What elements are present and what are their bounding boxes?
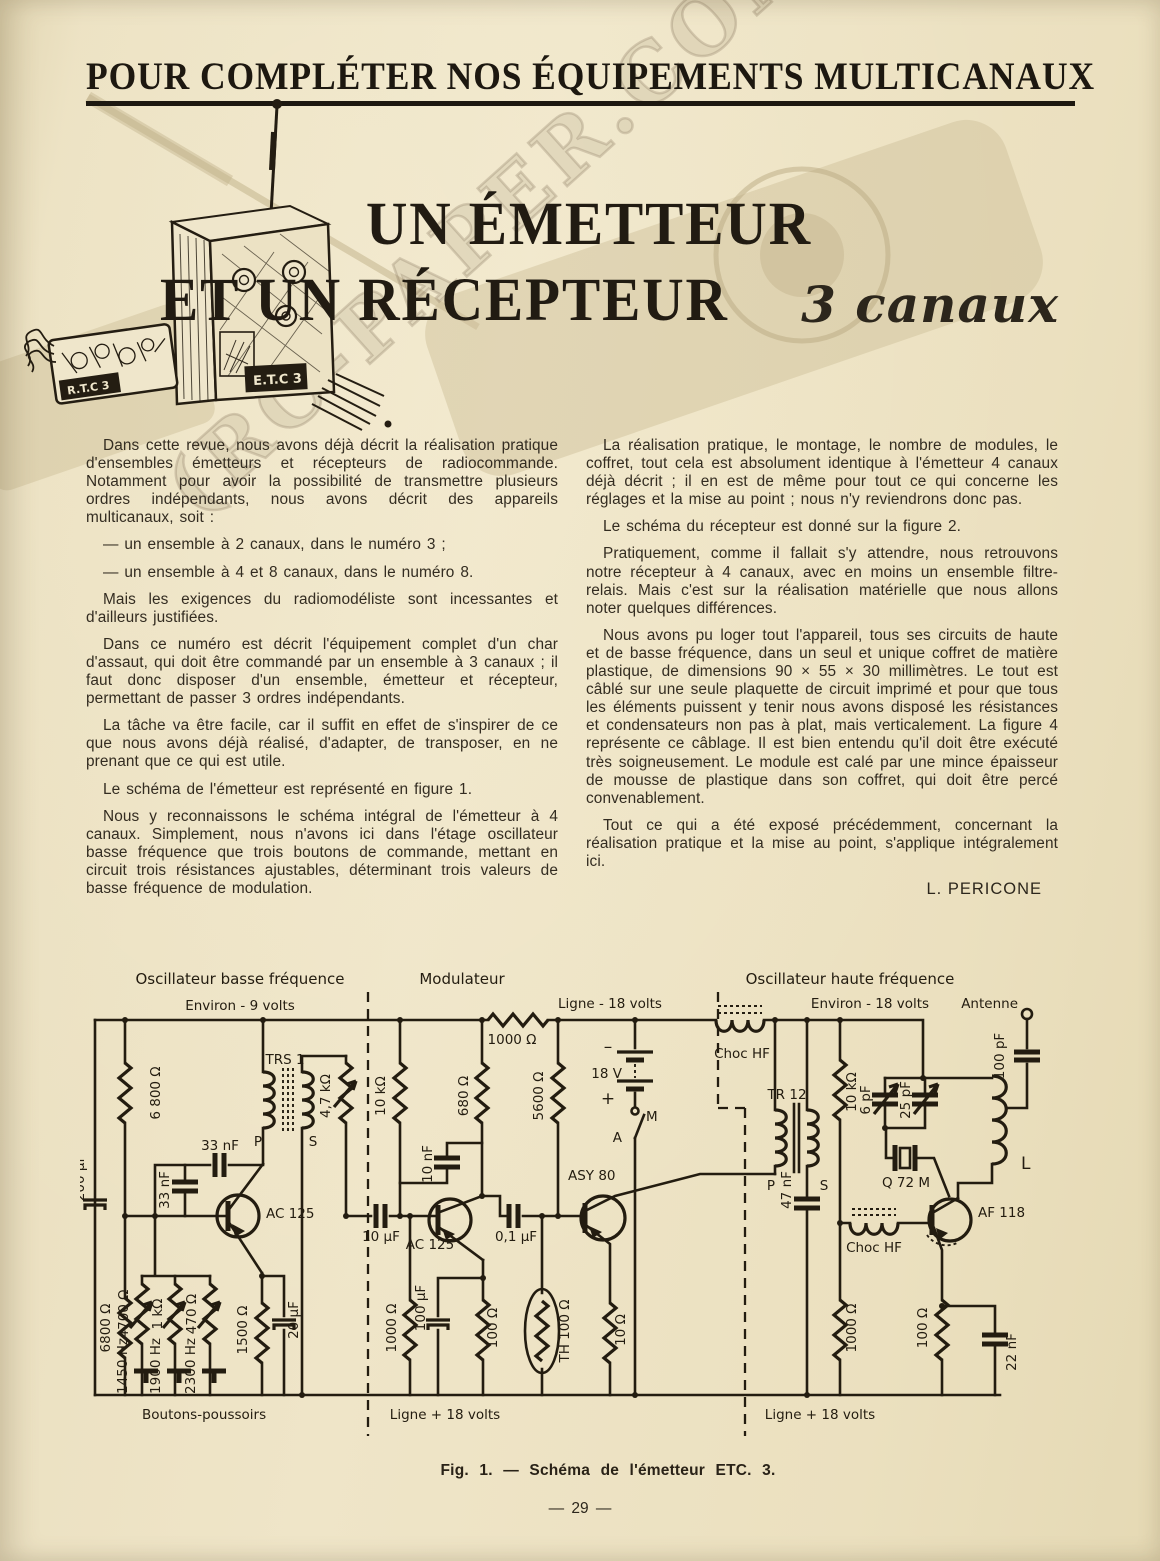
svg-text:1900 Hz: 1900 Hz [148, 1338, 164, 1394]
paragraph: La tâche va être facile, car il suffit e… [86, 717, 558, 771]
svg-text:1000 Ω: 1000 Ω [844, 1304, 860, 1353]
svg-text:6 pF: 6 pF [858, 1085, 874, 1114]
paragraph: Nous y reconnaissons le schéma intégral … [86, 808, 558, 898]
svg-text:33 nF: 33 nF [157, 1171, 173, 1209]
capacitor-10uF: 10 µF [362, 1204, 400, 1245]
resistor-10k-hf: 10 kΩ [834, 1020, 860, 1223]
svg-text:TH 100 Ω: TH 100 Ω [557, 1299, 573, 1363]
choke-HF-base: Choc HF [840, 1209, 929, 1256]
label-env-18v: Environ - 18 volts [811, 996, 929, 1012]
paragraph: Mais les exigences du radiomodéliste son… [86, 591, 558, 627]
svg-text:100 Ω: 100 Ω [915, 1308, 931, 1348]
label-ligne-p18-b: Ligne + 18 volts [765, 1407, 875, 1423]
capacitor-200uF: 200 µF [80, 1155, 107, 1210]
svg-text:10 µF: 10 µF [362, 1229, 400, 1245]
right-column: La réalisation pratique, le montage, le … [586, 437, 1058, 907]
svg-text:33 nF: 33 nF [201, 1138, 239, 1154]
transistor-AF118: AF 118 [927, 1198, 1025, 1300]
svg-text:10 kΩ: 10 kΩ [373, 1076, 389, 1116]
paragraph: Dans ce numéro est décrit l'équipement c… [86, 636, 558, 708]
label-env-9v: Environ - 9 volts [185, 998, 295, 1014]
svg-text:2300 Hz: 2300 Hz [183, 1338, 199, 1394]
receiver-module-illustration: R.T.C 3 [48, 324, 178, 404]
capacitor-22nF: 22 nF [942, 1306, 1020, 1395]
svg-text:1000 Ω: 1000 Ω [384, 1304, 400, 1353]
label-ligne-p18-a: Ligne + 18 volts [390, 1407, 500, 1423]
svg-text:A: A [613, 1130, 623, 1146]
svg-text:10 nF: 10 nF [420, 1145, 436, 1183]
resistor-10k-mod: 10 kΩ [373, 1020, 406, 1216]
svg-text:10 Ω: 10 Ω [613, 1314, 629, 1346]
svg-text:4700 Ω: 4700 Ω [116, 1290, 132, 1339]
svg-text:6 800 Ω: 6 800 Ω [148, 1066, 164, 1119]
resistor-1500: 1500 Ω [235, 1273, 268, 1395]
capacitor-10nF: 10 nF [400, 1143, 482, 1183]
resistor-5600: 5600 Ω [531, 1020, 564, 1216]
section-hf-label: Oscillateur haute fréquence [746, 970, 955, 988]
svg-text:470 Ω: 470 Ω [184, 1294, 200, 1334]
page-header: POUR COMPLÉTER NOS ÉQUIPEMENTS MULTICANA… [86, 54, 1095, 99]
paragraph: Le schéma de l'émetteur est représenté e… [86, 781, 558, 799]
paragraph: Nous avons pu loger tout l'appareil, tou… [586, 627, 1058, 808]
paragraph: Dans cette revue, nous avons déjà décrit… [86, 437, 558, 527]
svg-text:AC 125: AC 125 [266, 1206, 314, 1222]
svg-text:6800 Ω: 6800 Ω [98, 1304, 114, 1353]
magazine-page: (RC-PAPER.COM POUR COMPLÉTER NOS ÉQUIPEM… [0, 0, 1160, 1561]
svg-text:+: + [601, 1089, 615, 1109]
svg-text:P: P [767, 1178, 775, 1194]
author-name: L. PERICONE [586, 880, 1042, 899]
svg-text:200 µF: 200 µF [80, 1155, 88, 1201]
svg-text:0,1 µF: 0,1 µF [495, 1229, 537, 1245]
svg-text:P: P [254, 1134, 262, 1150]
svg-text:680 Ω: 680 Ω [456, 1076, 472, 1116]
svg-text:22 nF: 22 nF [1004, 1333, 1020, 1371]
svg-text:1450 Hz: 1450 Hz [115, 1338, 131, 1394]
svg-text:100 pF: 100 pF [992, 1033, 1008, 1079]
svg-text:20 µF: 20 µF [286, 1301, 302, 1339]
left-column: Dans cette revue, nous avons déjà décrit… [86, 437, 558, 907]
svg-text:1000 Ω: 1000 Ω [488, 1032, 537, 1048]
transistor-AC125-mod: AC 125 [406, 1196, 483, 1260]
svg-text:4,7 kΩ: 4,7 kΩ [318, 1074, 334, 1118]
svg-text:1500 Ω: 1500 Ω [235, 1306, 251, 1355]
paragraph: Tout ce qui a été exposé précédemment, c… [586, 817, 1058, 871]
svg-text:AF 118: AF 118 [978, 1205, 1025, 1221]
antenna-terminal: Antenne 100 pF [961, 996, 1040, 1108]
transistor-AC125-bf: AC 125 [217, 1164, 314, 1273]
resistor-1000-rail: 1000 Ω [488, 1014, 548, 1048]
svg-text:ASY 80: ASY 80 [568, 1168, 616, 1184]
capacitor-20uF: 20 µF [262, 1276, 302, 1395]
svg-text:100 µF: 100 µF [413, 1285, 429, 1331]
svg-text:TR 12: TR 12 [766, 1087, 806, 1103]
section-mod-label: Modulateur [419, 970, 505, 988]
svg-text:100 Ω: 100 Ω [485, 1308, 501, 1348]
svg-text:M: M [646, 1109, 658, 1125]
article-body: Dans cette revue, nous avons déjà décrit… [86, 437, 1058, 907]
svg-text:Q 72 M: Q 72 M [882, 1175, 930, 1191]
svg-text:–: – [604, 1037, 613, 1057]
title-line-2: ET UN RÉCEPTEUR [160, 266, 729, 336]
title-suffix: 3 canaux [801, 275, 1059, 334]
resistor-10: 10 Ω [604, 1303, 629, 1395]
svg-text:L: L [1021, 1154, 1031, 1174]
svg-text:Antenne: Antenne [961, 996, 1018, 1012]
svg-text:18 V: 18 V [591, 1066, 622, 1082]
crystal-Q72M: Q 72 M [882, 1128, 949, 1196]
title-line-1: UN ÉMETTEUR [366, 190, 812, 260]
page-number: — 29 — [0, 1500, 1160, 1518]
capacitor-100uF: 100 µF [413, 1278, 483, 1395]
label-ligne-m18: Ligne - 18 volts [558, 996, 662, 1012]
label-boutons-poussoirs: Boutons-poussoirs [142, 1407, 266, 1423]
paragraph: — un ensemble à 4 et 8 canaux, dans le n… [86, 564, 558, 582]
trimmer-6pF: 6 pF [858, 1078, 898, 1128]
resistor-100-hf: 100 Ω [915, 1300, 948, 1395]
capacitor-0.1uF: 0,1 µF [482, 1196, 583, 1245]
paragraph: Pratiquement, comme il fallait s'y atten… [586, 545, 1058, 617]
svg-text:47 nF: 47 nF [779, 1171, 795, 1209]
choke-HF-rail: Choc HF [714, 1006, 770, 1062]
paragraph: — un ensemble à 2 canaux, dans le numéro… [86, 536, 558, 554]
adjustable-resistor-470: 470 Ω 2300 Hz [183, 1276, 226, 1395]
svg-text:5600 Ω: 5600 Ω [531, 1072, 547, 1121]
figure-caption: Fig. 1. — Schéma de l'émetteur ETC. 3. [28, 1462, 1160, 1480]
svg-text:25 pF: 25 pF [898, 1081, 914, 1119]
transformer-TR12: TR 12 P S [766, 1020, 828, 1196]
svg-text:TRS 1: TRS 1 [264, 1052, 304, 1068]
svg-text:S: S [820, 1178, 829, 1194]
section-bf-label: Oscillateur basse fréquence [135, 970, 344, 988]
potentiometer-4.7k: 4,7 kΩ [318, 1056, 371, 1216]
svg-text:S: S [309, 1134, 318, 1150]
figure-1-schematic: Oscillateur basse fréquence Modulateur O… [80, 968, 1065, 1443]
capacitor-33nF-pair: 33 nF 33 nF [155, 1138, 263, 1216]
paragraph: Le schéma du récepteur est donné sur la … [586, 518, 1058, 536]
capacitor-47nF: 47 nF [779, 1171, 820, 1395]
coil-L: L [958, 1076, 1031, 1198]
svg-text:Choc HF: Choc HF [714, 1046, 770, 1062]
svg-text:AC 125: AC 125 [406, 1237, 454, 1253]
svg-text:Choc HF: Choc HF [846, 1240, 902, 1256]
resistor-680: 680 Ω [456, 1020, 488, 1196]
resistor-100-mod: 100 Ω [477, 1260, 501, 1395]
transmitter-nameplate: E.T.C 3 [253, 371, 302, 389]
paragraph: La réalisation pratique, le montage, le … [586, 437, 1058, 509]
svg-text:1 kΩ: 1 kΩ [150, 1298, 166, 1329]
